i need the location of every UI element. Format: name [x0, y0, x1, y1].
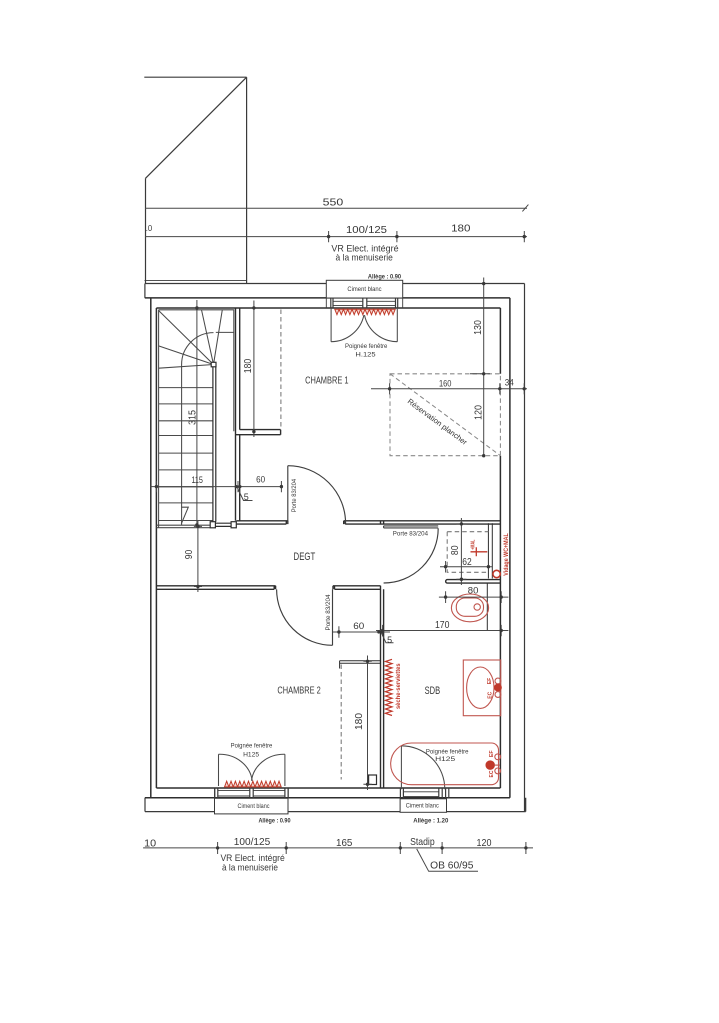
- svg-text:80: 80: [468, 585, 479, 596]
- svg-text:90: 90: [184, 549, 195, 559]
- svg-text:100/125: 100/125: [234, 836, 271, 848]
- svg-text:80: 80: [450, 545, 461, 555]
- svg-text:EC: EC: [488, 692, 494, 699]
- svg-text:180: 180: [451, 223, 471, 235]
- svg-text:120: 120: [477, 837, 492, 849]
- svg-text:H125: H125: [435, 756, 455, 763]
- svg-text:170: 170: [435, 620, 450, 631]
- svg-text:Poignée fenêtre: Poignée fenêtre: [426, 748, 469, 755]
- svg-text:Ciment blanc: Ciment blanc: [347, 286, 382, 293]
- svg-text:165: 165: [336, 837, 353, 849]
- svg-text:EF: EF: [489, 750, 495, 757]
- svg-text:Ciment blanc: Ciment blanc: [406, 802, 440, 809]
- svg-text:100/125: 100/125: [346, 224, 387, 236]
- svg-text:DEGT: DEGT: [294, 551, 316, 563]
- svg-text:550: 550: [323, 197, 344, 209]
- svg-text:5: 5: [244, 492, 249, 503]
- svg-text:H.125: H.125: [355, 352, 376, 359]
- svg-text:Ciment blanc: Ciment blanc: [238, 803, 271, 810]
- svg-text:sèche-serviettes: sèche-serviettes: [395, 663, 402, 709]
- svg-text:Porte 83/204: Porte 83/204: [393, 530, 429, 537]
- svg-text:60: 60: [353, 621, 364, 632]
- svg-text:180: 180: [354, 713, 365, 730]
- svg-text:Allège : 1.20: Allège : 1.20: [413, 817, 449, 824]
- svg-text:à la menuiserie: à la menuiserie: [222, 862, 278, 872]
- svg-text:Porte 83/204: Porte 83/204: [325, 594, 332, 630]
- svg-text:5: 5: [387, 635, 392, 646]
- svg-text:Réservation plancher: Réservation plancher: [406, 397, 470, 447]
- svg-text:Poignée fenêtre: Poignée fenêtre: [345, 343, 388, 350]
- svg-text:115: 115: [191, 475, 203, 486]
- svg-text:315: 315: [187, 410, 198, 425]
- svg-text:34: 34: [505, 378, 515, 389]
- svg-text:Porte 83/204: Porte 83/204: [291, 478, 298, 512]
- svg-text:62: 62: [462, 557, 472, 568]
- svg-text:EC: EC: [489, 771, 495, 778]
- svg-text:EF: EF: [487, 677, 493, 684]
- svg-text:Vidage WC+MAL: Vidage WC+MAL: [503, 533, 510, 576]
- svg-text:180: 180: [243, 358, 254, 373]
- svg-text:10: 10: [144, 837, 156, 849]
- svg-text:Allège : 0.90: Allège : 0.90: [368, 274, 402, 281]
- svg-text:120: 120: [473, 405, 484, 420]
- svg-text:+MAL: +MAL: [470, 539, 476, 549]
- svg-text:OB 60/95: OB 60/95: [430, 860, 473, 872]
- svg-text:Poignée fenêtre: Poignée fenêtre: [231, 742, 273, 749]
- svg-text:130: 130: [473, 320, 484, 335]
- svg-text:CHAMBRE 1: CHAMBRE 1: [305, 375, 349, 387]
- svg-text:Allège : 0.90: Allège : 0.90: [258, 817, 290, 824]
- svg-text:à la menuiserie: à la menuiserie: [336, 253, 393, 263]
- svg-text:H125: H125: [243, 751, 259, 758]
- svg-text:60: 60: [256, 475, 265, 486]
- svg-text:Stadip: Stadip: [410, 836, 435, 848]
- svg-text:160: 160: [439, 378, 452, 389]
- svg-text:SDB: SDB: [425, 685, 441, 697]
- svg-text:.0: .0: [146, 223, 153, 233]
- svg-text:CHAMBRE 2: CHAMBRE 2: [277, 685, 321, 697]
